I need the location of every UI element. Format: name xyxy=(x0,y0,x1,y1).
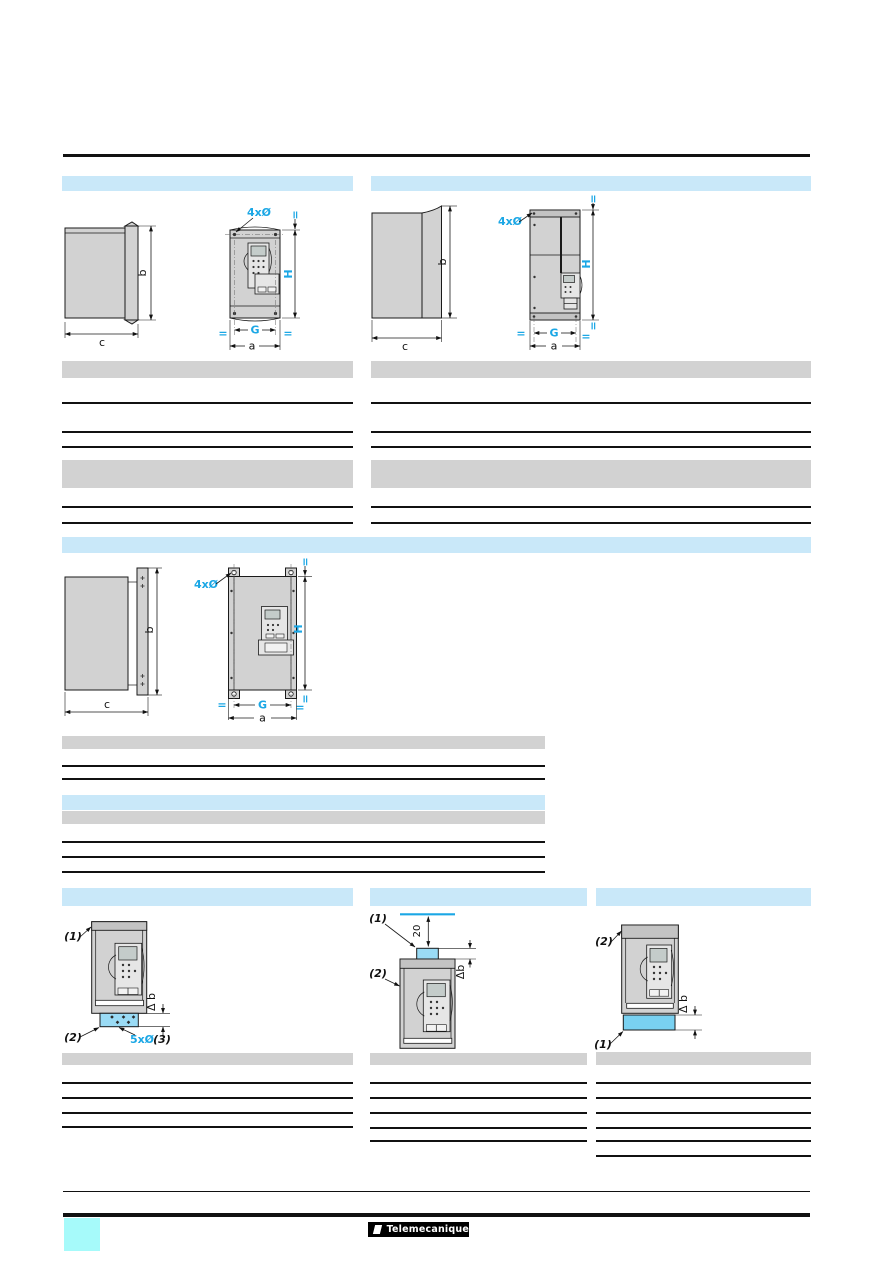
side-view xyxy=(372,206,442,318)
table-rule xyxy=(370,1127,587,1129)
table-header-bar xyxy=(62,811,545,824)
dim-label-H: H xyxy=(580,259,593,268)
table-rule xyxy=(370,1082,587,1084)
table-rule xyxy=(371,402,811,404)
table-rule xyxy=(370,1112,587,1114)
equal-spacing-mark: = xyxy=(283,327,292,340)
table-rule xyxy=(62,1112,353,1114)
mounting-holes-label: 4xØ xyxy=(498,215,523,228)
vent-plate xyxy=(100,1013,138,1026)
equal-spacing-mark: = xyxy=(581,330,590,343)
callout-2: (2) xyxy=(64,1031,82,1044)
callout-2: (2) xyxy=(369,967,387,980)
dim-label-H: H xyxy=(292,624,305,633)
dim-label-b: b xyxy=(143,626,156,633)
plinth xyxy=(623,1015,675,1030)
table-rule xyxy=(62,778,545,780)
table-rule xyxy=(62,765,545,767)
drive-front-view xyxy=(400,959,455,1048)
section-header-top-right xyxy=(371,176,811,191)
dim-label-delta-b: Δ b xyxy=(677,995,690,1013)
table-rule xyxy=(596,1082,811,1084)
table-rule xyxy=(371,446,811,448)
callout-2: (2) xyxy=(595,935,613,948)
table-header-bar xyxy=(62,736,545,749)
section-header-bottom-middle xyxy=(370,888,587,906)
catalog-page: b c 4xØ xyxy=(0,0,893,1263)
table-rule xyxy=(62,871,545,873)
dim-label-G: G xyxy=(258,699,267,712)
table-header-bar xyxy=(370,1053,587,1065)
plate-holes-label: 5xØ xyxy=(130,1033,155,1046)
table-rule xyxy=(62,506,353,508)
table-rule xyxy=(62,841,545,843)
dim-label-b: b xyxy=(436,258,449,265)
table-rule xyxy=(371,522,811,524)
dim-label-a: a xyxy=(551,340,558,353)
callout-1: (1) xyxy=(594,1038,612,1051)
page-corner-tab xyxy=(64,1218,100,1251)
table-rule xyxy=(596,1140,811,1142)
table-rule xyxy=(62,1126,353,1128)
top-rule xyxy=(63,154,810,157)
dim-label-H: H xyxy=(282,269,295,278)
table-rule xyxy=(62,1097,353,1099)
drive-front-view xyxy=(92,922,147,1014)
dim-label-delta-b: Δ b xyxy=(145,993,158,1011)
table-rule xyxy=(62,522,353,524)
table-rule xyxy=(62,856,545,858)
dimension-drawing-middle: b c xyxy=(62,556,318,728)
top-plate xyxy=(417,948,439,959)
table-rule xyxy=(62,1082,353,1084)
option-drawing-bottom-left: Δ b (1) (2) 5xØ (3) xyxy=(62,908,362,1050)
mounting-holes-label: 4xØ xyxy=(194,578,219,591)
dim-label-b: b xyxy=(136,269,149,276)
table-header-bar xyxy=(371,460,811,488)
table-rule xyxy=(62,446,353,448)
dim-label-delta-b: Δb xyxy=(454,965,467,980)
annotations-top: (1) 20 xyxy=(369,912,455,947)
equal-spacing-mark: = xyxy=(587,194,600,203)
callout-1: (1) xyxy=(64,930,82,943)
option-drawing-bottom-right: Δ b (2) (1) xyxy=(596,908,811,1056)
table-rule xyxy=(596,1097,811,1099)
table-rule xyxy=(370,1097,587,1099)
dim-label-c: c xyxy=(99,336,105,349)
section-header-bottom-left xyxy=(62,888,353,906)
side-view xyxy=(65,222,138,324)
dim-label-G: G xyxy=(250,324,259,337)
equal-spacing-mark: = xyxy=(218,327,227,340)
table-rule xyxy=(62,431,353,433)
table-header-bar xyxy=(62,1053,353,1065)
mounting-holes-label: 4xØ xyxy=(247,206,272,219)
dim-label-c: c xyxy=(104,698,110,711)
front-view xyxy=(530,210,582,320)
table-section-bar xyxy=(62,795,545,810)
drive-front-view xyxy=(622,925,679,1013)
table-header-bar xyxy=(62,460,353,488)
table-rule xyxy=(370,1140,587,1142)
clearance-label-20: 20 xyxy=(412,925,423,938)
dim-label-a: a xyxy=(259,712,266,725)
table-header-bar xyxy=(596,1052,811,1065)
table-rule xyxy=(371,506,811,508)
brand-logo: Telemecanique xyxy=(368,1222,469,1237)
side-view xyxy=(65,568,148,695)
brand-logo-text: Telemecanique xyxy=(387,1224,469,1235)
table-rule xyxy=(62,402,353,404)
table-header-bar xyxy=(371,361,811,378)
table-rule xyxy=(371,431,811,433)
table-header-bar xyxy=(62,361,353,378)
callout-1: (1) xyxy=(369,912,387,925)
dim-label-a: a xyxy=(249,340,256,353)
dim-label-c: c xyxy=(402,340,408,353)
footer-rule-thin xyxy=(63,1191,810,1192)
front-view xyxy=(229,568,297,699)
section-header-middle xyxy=(62,537,811,553)
equal-spacing-mark: = xyxy=(217,699,226,712)
table-rule xyxy=(596,1155,811,1157)
dimension-drawing-top-left: b c 4xØ xyxy=(62,198,362,358)
front-view xyxy=(225,227,285,321)
callout-3: (3) xyxy=(153,1033,171,1046)
dimension-drawing-top-right: b c 4xØ xyxy=(371,192,615,360)
equal-spacing-mark: = xyxy=(299,557,312,566)
section-header-top-left xyxy=(62,176,353,191)
equal-spacing-mark: = xyxy=(289,210,302,219)
equal-spacing-mark: = xyxy=(516,327,525,340)
brand-logo-icon xyxy=(373,1225,382,1234)
footer-rule-thick xyxy=(63,1213,810,1217)
table-rule xyxy=(596,1127,811,1129)
option-drawing-bottom-middle: (1) 20 Δb xyxy=(370,905,590,1055)
dim-label-G: G xyxy=(549,327,558,340)
section-header-bottom-right xyxy=(596,888,811,906)
table-rule xyxy=(596,1112,811,1114)
